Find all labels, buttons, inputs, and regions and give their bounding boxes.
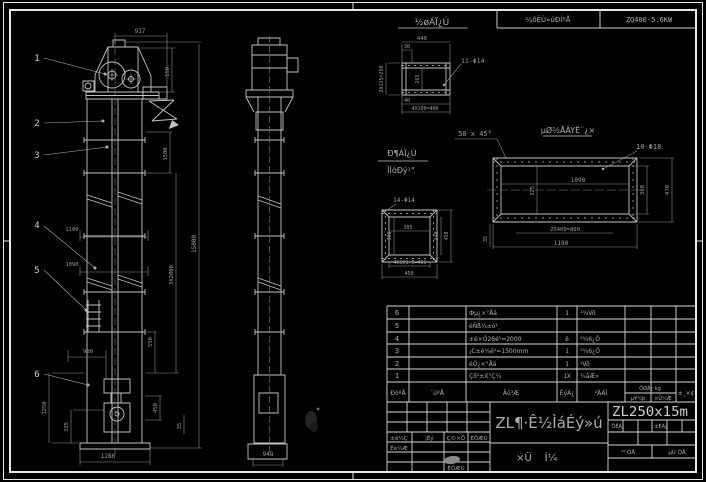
col-note: ±¸×¢: [678, 390, 695, 397]
detail-outlet-title: Ð¶ÁÏ¿Ú: [387, 147, 416, 158]
part-qty: 1: [565, 361, 569, 368]
model-number: ZL250x15m: [612, 405, 688, 420]
part-no: 2: [395, 360, 399, 368]
label-11-phi14: 11-Φ14: [461, 57, 485, 65]
drawing-title: ZL¶·Ê½ÌáÉý»ú: [495, 413, 602, 432]
balloon-4: 4: [34, 221, 39, 231]
detail-outlet-subtitle: ÎÍóÐý¹°: [386, 164, 415, 175]
part-no: 6: [395, 309, 399, 317]
scale-label: ±ÈÀý: [654, 422, 667, 430]
part-no: 5: [395, 322, 399, 330]
dim-440: 440: [417, 36, 427, 42]
dim-325-left: 325: [64, 422, 70, 432]
col-weight-single: µ¥¼þ: [631, 396, 645, 402]
detail-inlet: [402, 63, 450, 95]
detail-base-leader-dot: [602, 168, 604, 170]
col-code: ´úºÅ: [430, 390, 445, 397]
part-no: 1: [395, 372, 399, 380]
front-view: [80, 40, 179, 449]
dim-35-base: 35: [483, 236, 489, 242]
dim-948: 948: [263, 451, 274, 458]
date-label: ÈÕÆÚ: [447, 464, 464, 472]
side-view-dims: [253, 459, 283, 467]
col-weight: ÖØÁ¿ kg: [639, 385, 661, 392]
col-name: Ãû³Æ: [503, 390, 519, 397]
dim-450-front: 450: [153, 403, 159, 413]
part-mat: ¹Võ: [580, 361, 590, 368]
balloon-5: 5: [34, 266, 39, 276]
dim-550: 550: [148, 337, 154, 347]
part-name: éÑß¼±ó¹¸: [469, 323, 501, 330]
part-qty: 1: [565, 310, 569, 317]
detail-inlet-leader-dot: [443, 84, 445, 86]
dim-917: 917: [135, 28, 146, 35]
sheet-total-label: ¹² ÕÅ: [621, 449, 635, 456]
label-14-phi14: 14-Φ14: [393, 197, 415, 204]
part-name: Çõ¹±X°Ç¼: [469, 373, 502, 380]
dim-900: 900: [83, 349, 93, 355]
part-name: Фµ¿×°Åä: [469, 310, 497, 317]
dim-1090: 1090: [65, 262, 78, 268]
balloon-2: 2: [34, 119, 39, 129]
cad-drawing-sheet: ¼õËÙ»úÐÍºÅ ZQ400-5.6KW: [0, 0, 706, 482]
drawing-subtitle-1: ×Ü: [516, 451, 532, 464]
detail-outlet-dims: [382, 210, 453, 279]
dim-450-outlet: 450: [444, 231, 450, 240]
detail-inlet-dims: [386, 42, 461, 114]
dim-3x2000: 3X2000: [169, 265, 175, 285]
dim-2x400: 2X400=800: [550, 227, 580, 233]
detail-inlet-title: ½øÁÏ¿Ú: [415, 16, 449, 28]
part-no: 4: [395, 335, 399, 343]
dim-300: 300: [387, 231, 393, 240]
part-name: éÒ¿×°Åä: [469, 361, 497, 368]
part-name: ¡C±é¾é¹=1500mm: [469, 348, 528, 355]
rev-date-label: ÈÕÆÚ: [470, 434, 487, 442]
part-mat: ¼åÆ»: [580, 373, 599, 380]
drawing-canvas: ¼õËÙ»úÐÍºÅ ZQ400-5.6KW: [0, 0, 706, 482]
dim-35-front: 35: [177, 423, 183, 430]
dim-305: 305: [403, 225, 412, 231]
balloon-1: 1: [34, 54, 39, 64]
paper-smudge: [305, 408, 319, 432]
dim-1500: 1500: [163, 147, 169, 160]
detail-base-title: µØ½ÅÂÝË¨¿×: [541, 124, 595, 135]
gearbox-model: ZQ400-5.6KW: [626, 16, 673, 24]
rev-count-label: ´¦Êý: [422, 434, 434, 442]
dim-265: 265: [415, 74, 421, 83]
part-mat: ¹¾Võ: [580, 310, 596, 317]
part-qty: 1: [565, 348, 569, 355]
dim-1250: 1250: [42, 401, 48, 414]
dim-15000: 15000: [191, 235, 198, 253]
part-no: 3: [395, 347, 399, 355]
part-mat: ¹¾6¿Õ: [580, 336, 600, 343]
dim-325-base: 325: [530, 186, 536, 196]
dim-30: 30: [404, 44, 410, 50]
side-view: [246, 38, 298, 459]
chamfer-note: 50 x 45°: [458, 130, 492, 138]
dim-360: 360: [640, 185, 646, 195]
chamfer-leader: [455, 139, 506, 158]
mass-label: ÖÊÁ¿: [611, 422, 625, 430]
parts-header: ÐòºÅ ´úºÅ Ãû³Æ ÊýÁ¿ ²ÄÁÏ ÖØÁ¿ kg µ¥¼þ ×Ü…: [390, 385, 694, 402]
gearbox-label: ¼õËÙ»úÐÍºÅ: [526, 15, 571, 24]
rev-sign-label: Ç©×Ö: [447, 435, 466, 442]
dim-2x125: 2X125=250: [379, 65, 385, 92]
signature-mark: [444, 455, 461, 465]
dim-340: 340: [434, 231, 440, 240]
dim-1100: 1100: [65, 227, 78, 233]
part-qty: 1X: [563, 373, 571, 380]
dim-1190: 1190: [554, 240, 569, 247]
dim-4x101: 4X101.5=406: [393, 260, 426, 266]
dim-1286: 1286: [101, 453, 116, 460]
design-label: Éè¼Æ: [390, 444, 408, 452]
part-name: ±é×Ó26é¹=2000: [469, 336, 522, 343]
dim-450-outlet-base: 450: [404, 271, 413, 277]
balloon-leaders: [44, 58, 108, 386]
dim-4x100: 4X100=400: [411, 106, 438, 112]
balloon-6: 6: [34, 370, 39, 380]
col-weight-total: ×Ü¼Æ: [654, 395, 672, 402]
drawing-subtitle-2: Í¼: [545, 451, 558, 464]
col-qty: ÊýÁ¿: [560, 389, 575, 397]
sheet-no-label: µÚ ÕÅ: [668, 449, 686, 456]
col-seq: ÐòºÅ: [390, 390, 406, 397]
label-10-phi18: 10-Φ18: [636, 143, 661, 151]
part-mat: ¹¾6¿Õ: [580, 348, 600, 355]
dim-150: 150: [165, 67, 171, 77]
col-material: ²ÄÁÏ: [595, 390, 608, 397]
rev-mark-label: ±ê¼Ç: [390, 435, 407, 442]
balloon-3: 3: [34, 151, 39, 161]
detail-base-dims: [490, 158, 674, 249]
dim-1098: 1098: [571, 177, 586, 184]
dim-40: 40: [404, 98, 410, 104]
part-qty: 6: [565, 336, 569, 343]
dim-470: 470: [665, 185, 671, 195]
